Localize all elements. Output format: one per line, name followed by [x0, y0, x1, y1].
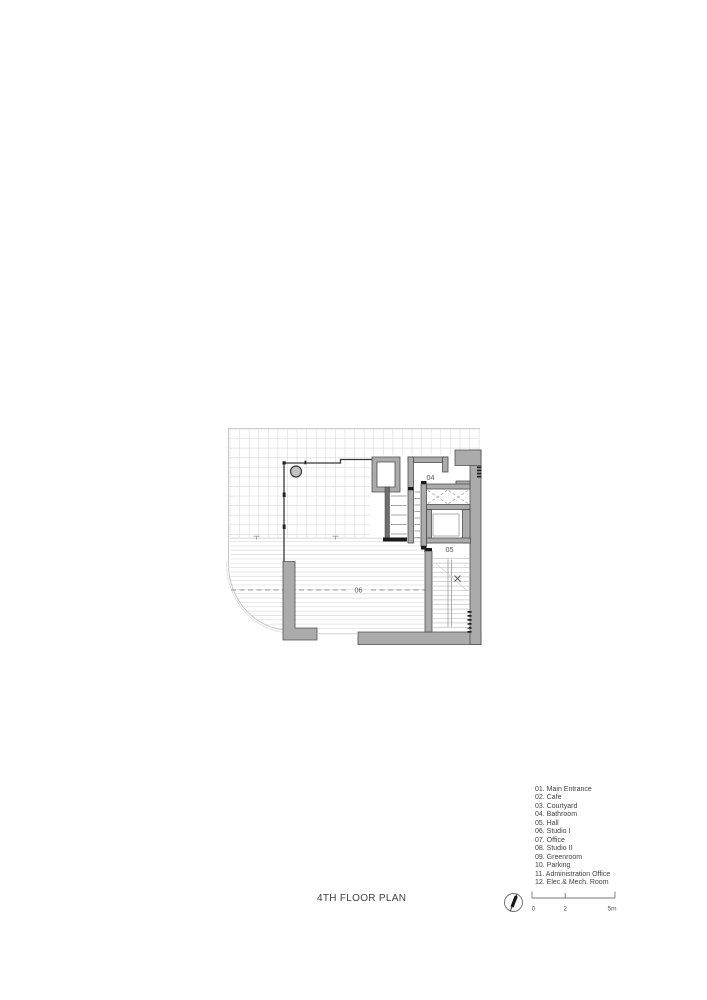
- stair-stringer: [448, 560, 452, 628]
- north-arrow-icon: [505, 894, 523, 912]
- bathroom-wall-left: [408, 457, 414, 490]
- wall-junction-mark: [283, 461, 286, 464]
- bathroom-wall-right: [443, 457, 449, 472]
- shaft-left-wall: [421, 484, 427, 546]
- legend-item: 08. Studio II: [535, 845, 610, 853]
- elevator-wall-bottom: [427, 538, 471, 543]
- bathroom-wall-top: [408, 457, 448, 463]
- scale-bar: 0 2 5m: [532, 892, 617, 913]
- wall-cap: [383, 538, 407, 542]
- wall-cap: [425, 548, 432, 551]
- wall-right: [470, 450, 481, 645]
- scale-label-0: 0: [532, 906, 536, 913]
- legend-item: 01. Main Entrance: [535, 786, 610, 794]
- legend-item: 02. Cafe: [535, 794, 610, 802]
- legend-item: 09. Greenroom: [535, 854, 610, 862]
- wall-top-right-block: [455, 450, 481, 466]
- legend-item: 06. Studio I: [535, 828, 610, 836]
- wall-junction-mark: [305, 461, 307, 465]
- wall-left-l: [283, 562, 317, 641]
- legend-item: 05. Hall: [535, 820, 610, 828]
- legend-item: 07. Office: [535, 837, 610, 845]
- legend-item: 03. Courtyard: [535, 803, 610, 811]
- scale-label-5m: 5m: [607, 906, 616, 913]
- shaft-top-wall: [427, 484, 471, 489]
- room-legend: 01. Main Entrance 02. Cafe 03. Courtyard…: [535, 786, 610, 887]
- legend-item: 12. Elec.& Mech. Room: [535, 879, 610, 887]
- stair-cross-mark: [455, 576, 461, 582]
- stair-treads: [433, 559, 469, 628]
- terrace-corner-mask: [228, 564, 290, 630]
- room-label-studio: 06: [355, 586, 363, 595]
- legend-item: 11. Administration Office: [535, 871, 610, 879]
- stairwell-wall: [425, 551, 432, 632]
- deck-boards: [231, 542, 425, 629]
- plan-title: 4TH FLOOR PLAN: [317, 893, 406, 904]
- room-label-hall: 05: [446, 545, 454, 554]
- wall-junction-mark: [283, 493, 286, 498]
- corridor-wall: [408, 490, 414, 543]
- wall-bottom: [358, 632, 481, 645]
- scale-label-2: 2: [563, 906, 567, 913]
- legend-item: 04. Bathroom: [535, 811, 610, 819]
- legend-item: 10. Parking: [535, 862, 610, 870]
- shaft-mid-wall: [427, 505, 471, 510]
- structural-column: [291, 466, 302, 477]
- wall-junction-mark: [283, 525, 286, 530]
- room-label-bathroom: 04: [427, 473, 435, 482]
- stair-mid-wall: [385, 487, 390, 539]
- wall-cap: [408, 487, 414, 490]
